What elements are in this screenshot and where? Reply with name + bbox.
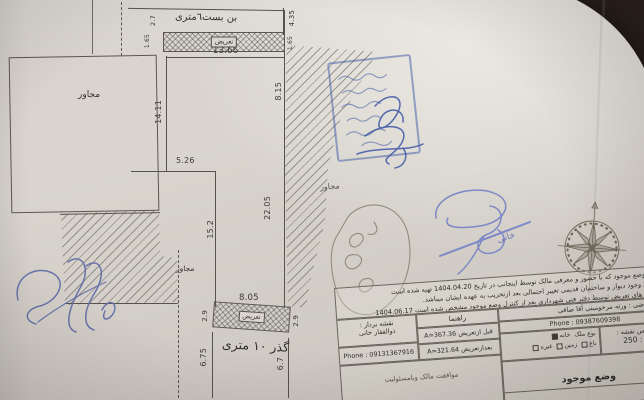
plan-dashed-line xyxy=(178,250,179,398)
scale-cell: مقیاس نقشه : 1 : 250 xyxy=(599,322,644,355)
signature-on-stamp xyxy=(345,88,440,173)
plan-line xyxy=(212,332,213,398)
plan-dashed-line xyxy=(121,2,122,56)
dimension-label: 6.7 xyxy=(276,357,285,370)
property-option: خانه xyxy=(551,332,570,340)
plan-line xyxy=(92,0,93,54)
plan-line xyxy=(215,171,216,307)
dimension-label: 2.9 xyxy=(201,310,209,322)
plan-line xyxy=(166,56,167,172)
option-label: خانه xyxy=(559,332,570,340)
passage-label: گذر ۱۰ متری xyxy=(222,336,290,354)
plan-line xyxy=(284,10,285,308)
property-option: باغ xyxy=(581,340,597,348)
plan-line xyxy=(128,8,285,11)
checkbox-icon xyxy=(556,343,562,349)
dimension-label: 2.9 xyxy=(292,315,300,327)
widening-strip-bottom: تعریض xyxy=(212,301,291,332)
adjacent-label: مجاور xyxy=(320,181,340,191)
adjacent-label: مجاور xyxy=(78,90,100,100)
checkbox-icon xyxy=(532,344,538,350)
option-label: غیره xyxy=(540,343,552,351)
signature-bottom-left xyxy=(10,248,155,348)
dimension-label: 1.65 xyxy=(144,34,151,48)
dimension-label: 14.11 xyxy=(154,100,163,124)
checkbox-icon xyxy=(581,341,587,347)
property-option: غیره xyxy=(532,343,552,351)
adjacent-parcel-outline xyxy=(9,55,160,214)
dimension-label: 22.05 xyxy=(263,196,272,220)
info-table: نقشه وضع موجود که با حضور و معرفی مالک ت… xyxy=(334,265,644,400)
dimension-label: 8.05 xyxy=(239,293,259,303)
site-plan-drawing: مجاور بن بست٦متری تعریض 2.7 1.65 1.65 4.… xyxy=(0,0,644,400)
dimension-label: 2.7 xyxy=(149,15,157,26)
signature-middle xyxy=(418,178,543,288)
dimension-label: 15.2 xyxy=(206,220,215,239)
property-type-label: نوع ملک xyxy=(574,330,596,338)
dimension-label: 6.75 xyxy=(199,348,208,367)
dimension-label: 4.35 xyxy=(288,10,296,26)
photographed-site-plan: مجاور بن بست٦متری تعریض 2.7 1.65 1.65 4.… xyxy=(0,0,644,400)
dimension-label: 5.26 xyxy=(176,156,195,165)
dimension-label: 8.15 xyxy=(274,82,283,101)
status-title: وضع موجود xyxy=(561,371,616,386)
plan-line xyxy=(166,57,284,58)
option-label: زمین xyxy=(564,341,577,349)
alley-label: بن بست٦متری xyxy=(175,11,237,23)
checkbox-checked-icon xyxy=(551,333,557,339)
option-label: باغ xyxy=(589,340,597,347)
dimension-label: 13.66 xyxy=(213,46,238,56)
property-option: زمین xyxy=(556,341,577,349)
plan-line xyxy=(131,171,216,172)
widening-label: تعریض xyxy=(238,311,265,324)
